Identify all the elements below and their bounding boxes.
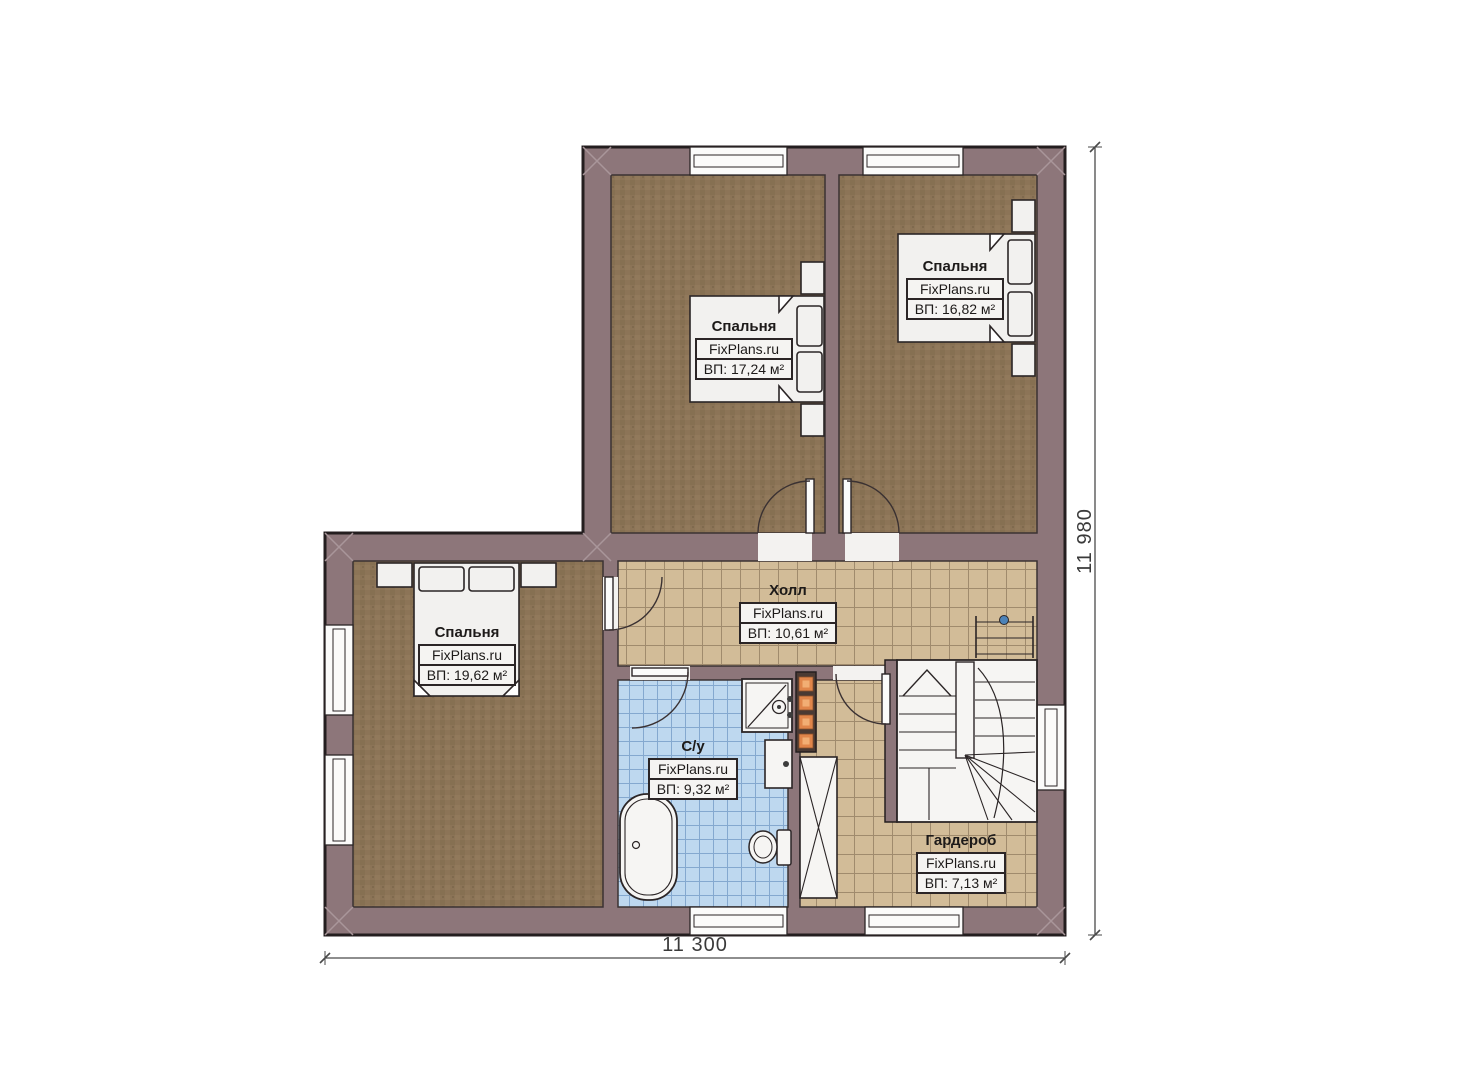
room-info-box: FixPlans.ru ВП: 17,24 м² [695, 338, 793, 380]
pillow [797, 352, 822, 392]
pillow [1008, 292, 1032, 336]
room-info-box: FixPlans.ru ВП: 19,62 м² [418, 644, 516, 686]
room-info-box: FixPlans.ru ВП: 10,61 м² [739, 602, 837, 644]
room-info-box: FixPlans.ru ВП: 16,82 м² [906, 278, 1004, 320]
room-area: ВП: 7,13 м² [918, 872, 1005, 892]
room-name: С/у [681, 738, 704, 755]
window [325, 625, 353, 715]
watermark: FixPlans.ru [420, 646, 514, 664]
room-label-bathroom: С/у FixPlans.ru ВП: 9,32 м² [641, 738, 745, 800]
room-name: Спальня [923, 258, 988, 275]
room-name: Холл [769, 582, 807, 599]
nightstand [1012, 200, 1035, 232]
window [863, 147, 963, 175]
dimension-height-label: 11 980 [1074, 501, 1096, 581]
bathtub [620, 794, 677, 900]
shower [742, 679, 793, 732]
room-label-bedroom-top-left: Спальня FixPlans.ru ВП: 17,24 м² [692, 318, 796, 380]
room-area: ВП: 19,62 м² [420, 664, 514, 684]
room-label-bedroom-top-right: Спальня FixPlans.ru ВП: 16,82 м² [903, 258, 1007, 320]
room-name: Спальня [435, 624, 500, 641]
floor-plan-canvas [0, 0, 1473, 1080]
floor-plan-page: Спальня FixPlans.ru ВП: 17,24 м² Спальня… [0, 0, 1473, 1080]
room-area: ВП: 17,24 м² [697, 358, 791, 378]
pillow [469, 567, 514, 591]
window [690, 907, 787, 935]
window [690, 147, 787, 175]
toilet [749, 830, 791, 865]
watermark: FixPlans.ru [650, 760, 737, 778]
nightstand [521, 563, 556, 587]
window [1037, 705, 1065, 790]
room-area: ВП: 16,82 м² [908, 298, 1002, 318]
pillow [797, 306, 822, 346]
dimension-width-label: 11 300 [640, 934, 750, 957]
room-info-box: FixPlans.ru ВП: 7,13 м² [916, 852, 1007, 894]
pillow [419, 567, 464, 591]
room-area: ВП: 9,32 м² [650, 778, 737, 798]
room-area: ВП: 10,61 м² [741, 622, 835, 642]
watermark: FixPlans.ru [918, 854, 1005, 872]
room-info-box: FixPlans.ru ВП: 9,32 м² [648, 758, 739, 800]
room-label-bedroom-bottom-left: Спальня FixPlans.ru ВП: 19,62 м² [415, 624, 519, 686]
room-label-wardrobe: Гардероб FixPlans.ru ВП: 7,13 м² [908, 832, 1014, 894]
room-label-hall: Холл FixPlans.ru ВП: 10,61 м² [736, 582, 840, 644]
room-name: Гардероб [926, 832, 997, 849]
nightstand [801, 262, 824, 294]
railing-post-dot [1000, 616, 1009, 625]
pillow [1008, 240, 1032, 284]
room-name: Спальня [712, 318, 777, 335]
nightstand [801, 404, 824, 436]
floor-bedroom-top-right [839, 175, 1037, 533]
ventilation-shaft [796, 672, 816, 752]
nightstand [377, 563, 412, 587]
sink-vanity [765, 740, 792, 788]
wardrobe-cabinet [800, 757, 837, 898]
window [325, 755, 353, 845]
stair-rail [956, 662, 974, 758]
window [865, 907, 963, 935]
watermark: FixPlans.ru [908, 280, 1002, 298]
nightstand [1012, 344, 1035, 376]
watermark: FixPlans.ru [741, 604, 835, 622]
watermark: FixPlans.ru [697, 340, 791, 358]
